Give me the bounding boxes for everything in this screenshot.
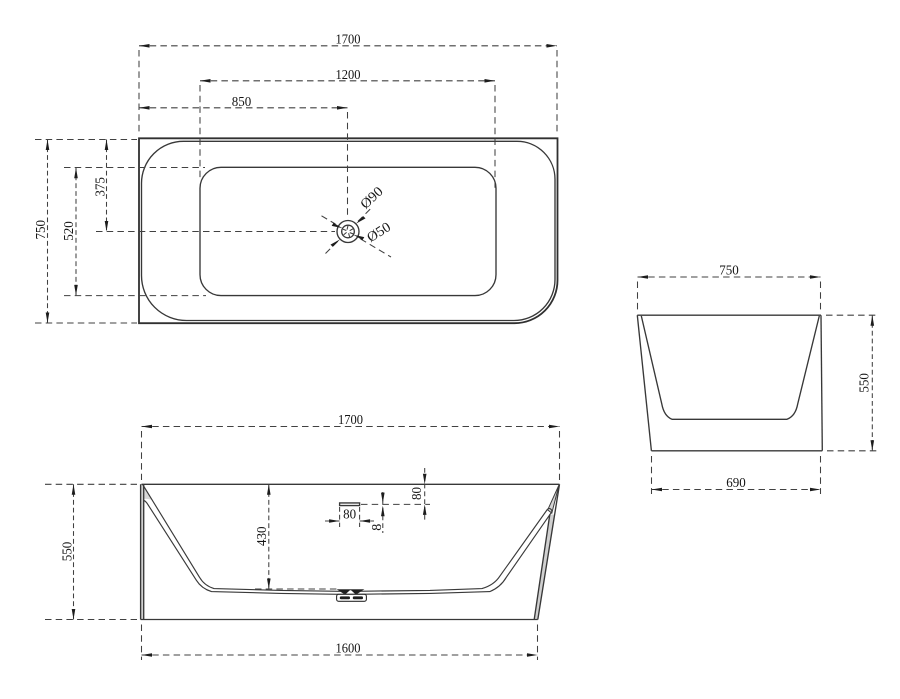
svg-text:550: 550 [61,542,76,562]
svg-text:1700: 1700 [336,32,361,47]
svg-text:80: 80 [410,487,425,500]
svg-text:8: 8 [370,524,385,531]
svg-text:1600: 1600 [336,642,361,657]
svg-text:750: 750 [719,264,739,279]
svg-text:850: 850 [232,95,252,110]
svg-text:375: 375 [93,177,108,197]
svg-text:690: 690 [726,476,746,491]
svg-text:1200: 1200 [336,68,361,83]
svg-text:80: 80 [343,507,356,522]
svg-text:430: 430 [255,527,270,547]
svg-text:520: 520 [62,221,77,241]
svg-text:1700: 1700 [338,413,363,428]
svg-text:550: 550 [857,373,872,393]
svg-text:750: 750 [34,220,49,240]
